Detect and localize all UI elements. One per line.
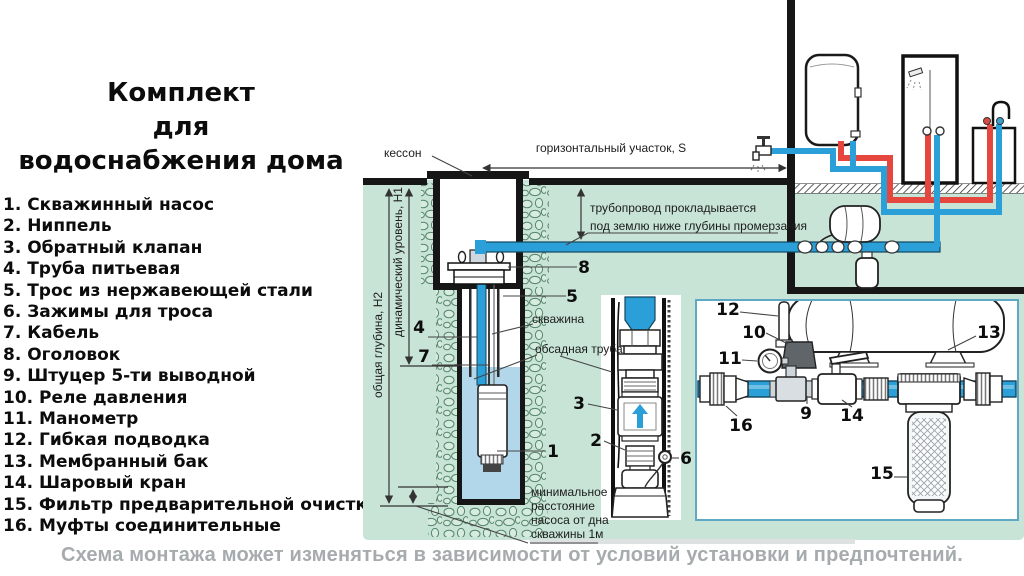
pipe-detail <box>625 297 655 330</box>
pump-detail-panel <box>601 295 681 520</box>
check-valve-detail <box>618 392 662 441</box>
small-pressure-tank <box>830 206 880 242</box>
callout-5: 5 <box>566 287 578 307</box>
sink-cabinet <box>973 128 1015 183</box>
callout-10: 10 <box>742 323 766 343</box>
callout-3: 3 <box>573 394 585 414</box>
callout-13: 13 <box>977 323 1001 343</box>
dynamic-level-label: динамический уровень, Н1 <box>391 187 405 337</box>
well-label: скважина <box>532 312 585 326</box>
installation-diagram: кессон горизонтальный участок, S трубопр… <box>0 0 1024 576</box>
callout-8: 8 <box>578 258 590 278</box>
callout-6: 6 <box>680 449 692 469</box>
callout-11: 11 <box>718 349 742 369</box>
pipe-note-line2: под землю ниже глубины промерзания <box>590 219 807 233</box>
callout-9: 9 <box>800 404 812 424</box>
casing-pipe-label: обсадная труба <box>535 342 623 356</box>
five-way-fitting <box>770 377 812 401</box>
pipe-note-line1: трубопровод прокладывается <box>590 201 756 215</box>
union-fitting <box>864 378 888 400</box>
min-dist-line2: расстояние <box>531 499 595 513</box>
casing-pipe-wall <box>469 289 472 377</box>
water-heater <box>806 55 861 145</box>
total-depth-label: общая глубина, Н2 <box>371 292 385 398</box>
callout-16: 16 <box>729 416 753 436</box>
footer-note: Схема монтажа может изменяться в зависим… <box>0 544 1024 567</box>
basement-slab <box>787 287 1024 294</box>
kesson-label: кессон <box>384 146 422 160</box>
cold-tap-icon <box>997 118 1004 125</box>
callout-7: 7 <box>418 347 430 367</box>
ground-surface-left <box>363 178 427 185</box>
callout-1: 1 <box>547 442 559 462</box>
min-dist-line3: насоса от дна <box>531 513 609 527</box>
callout-15: 15 <box>870 464 894 484</box>
drinking-pipe <box>477 284 486 385</box>
buried-supply-pipe <box>481 242 940 252</box>
horizontal-section-label: горизонтальный участок, S <box>536 141 686 155</box>
ground-surface-right <box>529 178 789 185</box>
hot-tap-icon <box>984 118 991 125</box>
callout-14: 14 <box>840 406 864 426</box>
callout-4: 4 <box>413 318 425 338</box>
pre-filter <box>898 374 960 512</box>
callout-2: 2 <box>590 431 602 451</box>
callout-12: 12 <box>716 300 740 320</box>
flexible-hose <box>776 302 792 347</box>
basement-filter <box>856 258 878 288</box>
min-dist-line4: скважины 1м <box>531 527 603 541</box>
submersible-pump <box>478 385 507 472</box>
nipple-detail <box>626 446 654 466</box>
min-dist-line1: минимальное <box>531 485 608 499</box>
